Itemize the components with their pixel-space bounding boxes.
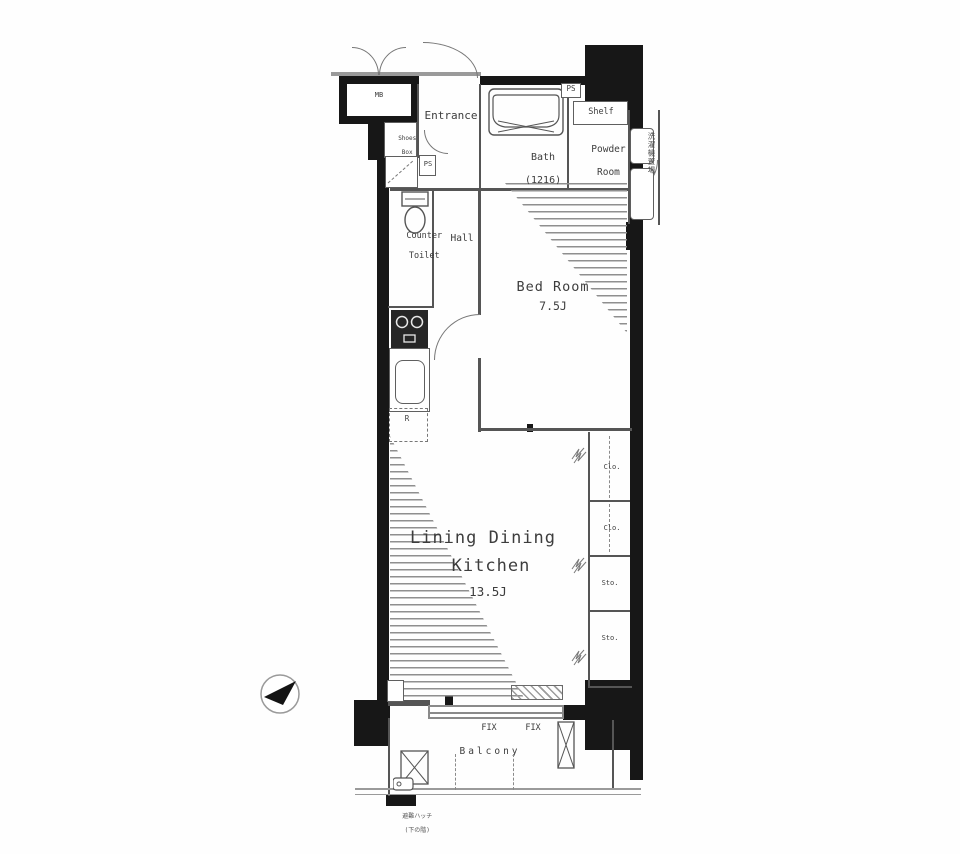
fold-door-mark-3	[570, 648, 588, 666]
entrance-label: Entrance	[425, 110, 478, 123]
wall-entrance-bath	[479, 84, 481, 190]
shelf-label: Shelf	[588, 107, 614, 117]
balcony-bottom-line2	[355, 794, 641, 795]
bathtub-icon	[488, 88, 564, 136]
hall-label: Hall	[451, 233, 474, 244]
window-mid-rail	[430, 712, 562, 714]
alcove-right-edge	[658, 110, 660, 225]
wall-toilet-bottom	[388, 306, 434, 308]
balcony-label: Balcony	[459, 746, 520, 757]
fix-window-label-2: FIX	[525, 723, 540, 733]
ps-closet-diagonal	[386, 157, 416, 186]
wall-bedroom-bottom	[481, 428, 632, 431]
closet-divider-3	[590, 610, 630, 612]
slop-sink-box	[387, 680, 404, 702]
ldk-label-line2: Kitchen	[452, 556, 531, 576]
wall-bottom-left-block	[354, 700, 390, 746]
entrance-hall-door-arc	[424, 130, 448, 154]
wall-hall-bedroom-lower	[478, 358, 481, 432]
closet-divider-1	[590, 500, 630, 502]
mb-label: MB	[375, 91, 383, 99]
wall-entrance-left	[417, 84, 419, 158]
ldk-size-label: 13.5J	[469, 585, 507, 600]
bedroom-label: Bed Room	[516, 280, 589, 296]
closet-bottom	[588, 686, 632, 688]
entrance-door-arc	[423, 42, 478, 78]
closet-label-4: Sto.	[602, 634, 619, 642]
ldk-label-line1: Lining Dining	[410, 528, 556, 548]
toilet-label: Counter Toilet	[386, 221, 442, 271]
bath-label: Bath (1216)	[501, 140, 561, 199]
ps-bath-label: PS	[566, 85, 575, 94]
balcony-left-wall	[388, 718, 390, 796]
wall-window-right	[563, 705, 613, 720]
refrigerator-label: R	[405, 415, 410, 424]
low-counter	[511, 685, 563, 700]
bedroom-door-arc	[434, 314, 480, 360]
closet-label-3: Sto.	[602, 579, 619, 587]
ps-toilet-label: PS	[424, 160, 432, 168]
ldk-window	[428, 705, 564, 719]
wall-bottom-stub	[386, 794, 416, 806]
balcony-partition	[555, 720, 577, 770]
mb-box	[339, 76, 419, 124]
kitchen-sink	[395, 360, 425, 404]
closet-divider-2	[590, 555, 630, 557]
balcony-divider-2	[513, 754, 514, 790]
evacuation-hatch-note: 避難ハッチ (下の階)	[388, 806, 432, 841]
evacuation-hatch-icon	[393, 748, 431, 792]
balcony-right-wall	[612, 720, 614, 790]
closet-left-wall	[588, 432, 590, 688]
wall-alcove-stub	[626, 222, 643, 250]
balcony-divider-1	[455, 754, 456, 790]
powder-room-label: Powder Room	[568, 133, 625, 189]
mb-door-right-arc	[379, 47, 406, 75]
fold-door-mark-1	[570, 446, 588, 464]
fix-window-label-1: FIX	[481, 723, 496, 733]
fold-door-mark-2	[570, 556, 588, 574]
stove-icon	[391, 310, 428, 348]
bedroom-size-label: 7.5J	[539, 300, 567, 314]
laundry-vertical-label: 洗濯機置場	[646, 132, 657, 224]
wall-hall-bedroom-upper	[478, 191, 481, 315]
floor-plan: MB Entrance Shoes Box PS	[0, 0, 960, 854]
closet-label-1: Clo.	[604, 463, 621, 471]
closet-label-2: Clo.	[604, 524, 621, 532]
compass-icon	[256, 670, 304, 718]
mb-door-left-arc	[352, 47, 379, 75]
ps-closet	[385, 156, 418, 188]
